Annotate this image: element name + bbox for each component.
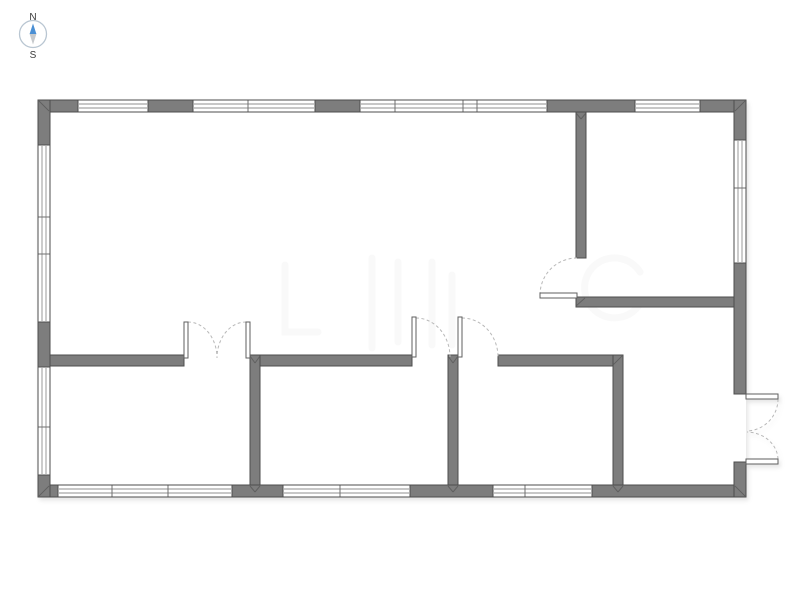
door-exterior-double-swing-arc xyxy=(747,399,778,431)
door-interior-double-leaf xyxy=(246,322,250,358)
door-exterior-double-swing-arc xyxy=(747,432,778,459)
door-exterior-double-leaf xyxy=(746,394,778,399)
window-bottom-1 xyxy=(58,485,232,497)
window-top-3 xyxy=(360,100,547,112)
wall-middle-center xyxy=(250,355,412,366)
wall-vertical-right xyxy=(613,355,623,485)
floor-plan-drawing xyxy=(0,0,800,600)
wall-topright-room-bottom xyxy=(576,297,734,307)
window-bottom-3 xyxy=(493,485,592,497)
door-interior-double-leaf xyxy=(184,322,188,358)
window-top-4 xyxy=(635,100,700,112)
wall-vertical-left xyxy=(250,355,260,485)
wall-topright-room-left xyxy=(576,112,586,258)
window-left-2 xyxy=(38,367,50,475)
door-room-mid-1-leaf xyxy=(412,317,416,357)
door-room-mid-2-leaf xyxy=(458,317,462,357)
door-exterior-double-leaf xyxy=(746,459,778,464)
window-top-1 xyxy=(78,100,148,112)
floorplan-page: N S xyxy=(0,0,800,600)
window-left-1 xyxy=(38,145,50,322)
window-bottom-2 xyxy=(283,485,410,497)
wall-middle-left xyxy=(50,355,184,366)
door-topright-room-leaf xyxy=(540,293,577,298)
wall-vertical-mid xyxy=(448,355,458,485)
window-right-1 xyxy=(734,140,746,263)
wall-exterior-right-lower xyxy=(734,462,746,497)
window-top-2 xyxy=(193,100,315,112)
wall-middle-right xyxy=(498,355,623,366)
